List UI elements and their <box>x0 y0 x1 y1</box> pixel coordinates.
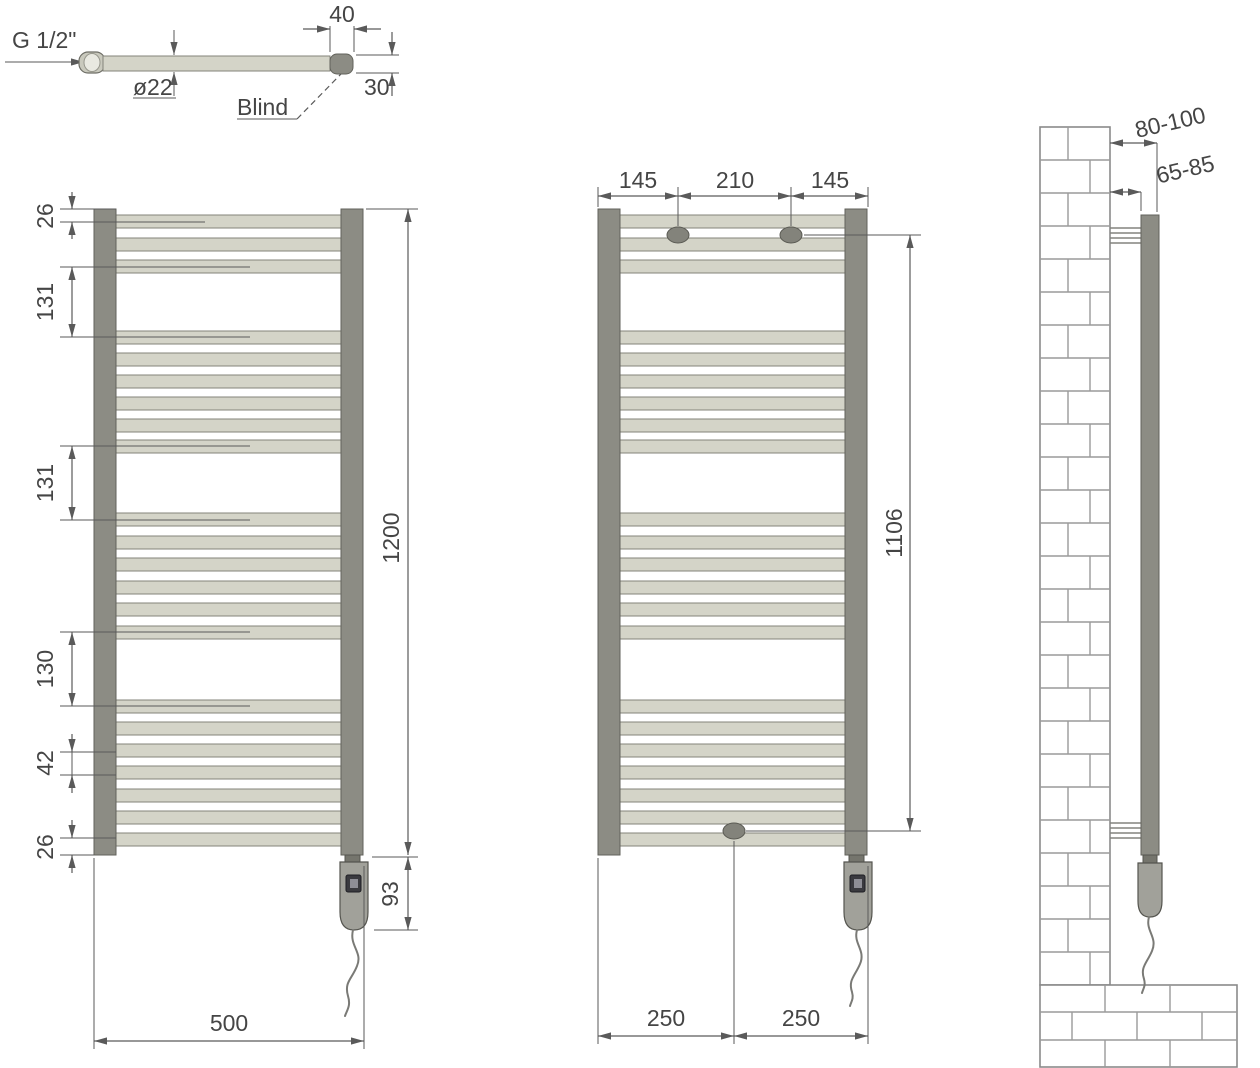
blind-cap-label: Blind <box>237 94 288 120</box>
towel-rung <box>620 513 845 526</box>
towel-rung <box>620 536 845 549</box>
dim-bottom-left: 250 <box>647 1005 685 1031</box>
power-cable <box>345 930 359 1016</box>
towel-rung <box>620 260 845 273</box>
towel-rung <box>620 789 845 802</box>
towel-rung <box>620 238 845 251</box>
dim-bottom-gap: 26 <box>32 834 58 860</box>
thread-size-label: G 1/2" <box>12 27 76 53</box>
towel-rung <box>116 353 341 366</box>
dim-bracket-vertical: 1106 <box>881 508 907 557</box>
dim-bracket-center: 210 <box>716 167 754 193</box>
towel-rung <box>116 419 341 432</box>
towel-rung <box>116 811 341 824</box>
wall-bracket-top <box>1110 228 1141 243</box>
dim-section-gap-2: 131 <box>32 464 58 502</box>
brick-floor <box>1040 985 1237 1067</box>
dim-depth-max: 80-100 <box>1132 101 1208 142</box>
dim-top-gap: 26 <box>32 203 58 229</box>
towel-rung <box>620 581 845 594</box>
wall-bracket-upper-right <box>780 227 802 243</box>
wall-bracket-upper-left <box>667 227 689 243</box>
mounting-view: 145 210 145 1106 250 250 <box>598 167 921 1044</box>
towel-rung <box>116 581 341 594</box>
towel-rung <box>620 419 845 432</box>
wall-bracket-bottom <box>1110 823 1141 838</box>
wall-bracket-lower <box>723 823 745 839</box>
dim-section-gap-1: 131 <box>32 283 58 321</box>
dim-bracket-right: 145 <box>811 167 849 193</box>
left-collector-tube <box>598 209 620 855</box>
towel-rung <box>620 353 845 366</box>
towel-rung <box>620 215 845 228</box>
drawing-canvas: G 1/2" ø22 40 30 Blind <box>0 0 1260 1068</box>
towel-rung <box>116 603 341 616</box>
dim-total-width: 500 <box>210 1010 248 1036</box>
towel-rung <box>620 722 845 735</box>
right-collector-tube <box>845 209 867 855</box>
dim-heater-height: 93 <box>377 881 403 907</box>
towel-rung <box>620 744 845 757</box>
right-collector-tube <box>341 209 363 855</box>
towel-rung <box>116 744 341 757</box>
dim-rung-gap: 42 <box>32 750 58 776</box>
towel-rung <box>620 603 845 616</box>
mounting-view-rungs <box>620 215 845 846</box>
towel-rung <box>620 375 845 388</box>
dim-depth-min: 65-85 <box>1154 150 1217 189</box>
towel-rung <box>116 833 341 846</box>
radiator-profile <box>1141 215 1159 855</box>
towel-rung <box>620 766 845 779</box>
towel-rung <box>620 811 845 824</box>
dim-bracket-left: 145 <box>619 167 657 193</box>
towel-rung <box>620 626 845 639</box>
towel-rung <box>620 440 845 453</box>
towel-rung <box>620 558 845 571</box>
heating-element-side <box>1138 863 1162 917</box>
dim-section-gap-3: 130 <box>32 650 58 688</box>
side-view: 80-100 65-85 <box>1040 101 1237 1067</box>
front-view-rungs <box>116 215 341 846</box>
power-cable <box>1142 917 1154 993</box>
cap-length-label: 40 <box>329 1 355 27</box>
towel-rung <box>116 375 341 388</box>
towel-rung <box>116 558 341 571</box>
towel-rung <box>116 789 341 802</box>
towel-rung <box>116 397 341 410</box>
blind-cap <box>330 54 353 74</box>
towel-rung <box>620 397 845 410</box>
towel-rung <box>620 331 845 344</box>
power-cable <box>850 930 862 1006</box>
towel-rung <box>116 238 341 251</box>
towel-rung <box>116 766 341 779</box>
front-view: 26 131 131 130 42 26 1200 93 <box>32 192 418 1049</box>
rung-tube <box>103 56 330 71</box>
rung-detail-view: G 1/2" ø22 40 30 Blind <box>5 1 399 120</box>
left-collector-tube <box>94 209 116 855</box>
towel-rung <box>620 700 845 713</box>
dim-total-height: 1200 <box>378 512 404 563</box>
radiator-technical-drawing: G 1/2" ø22 40 30 Blind <box>0 0 1260 1068</box>
tube-diameter-label: ø22 <box>133 74 173 100</box>
dim-bottom-right: 250 <box>782 1005 820 1031</box>
cap-height-label: 30 <box>364 74 390 100</box>
towel-rung <box>116 722 341 735</box>
towel-rung <box>116 536 341 549</box>
